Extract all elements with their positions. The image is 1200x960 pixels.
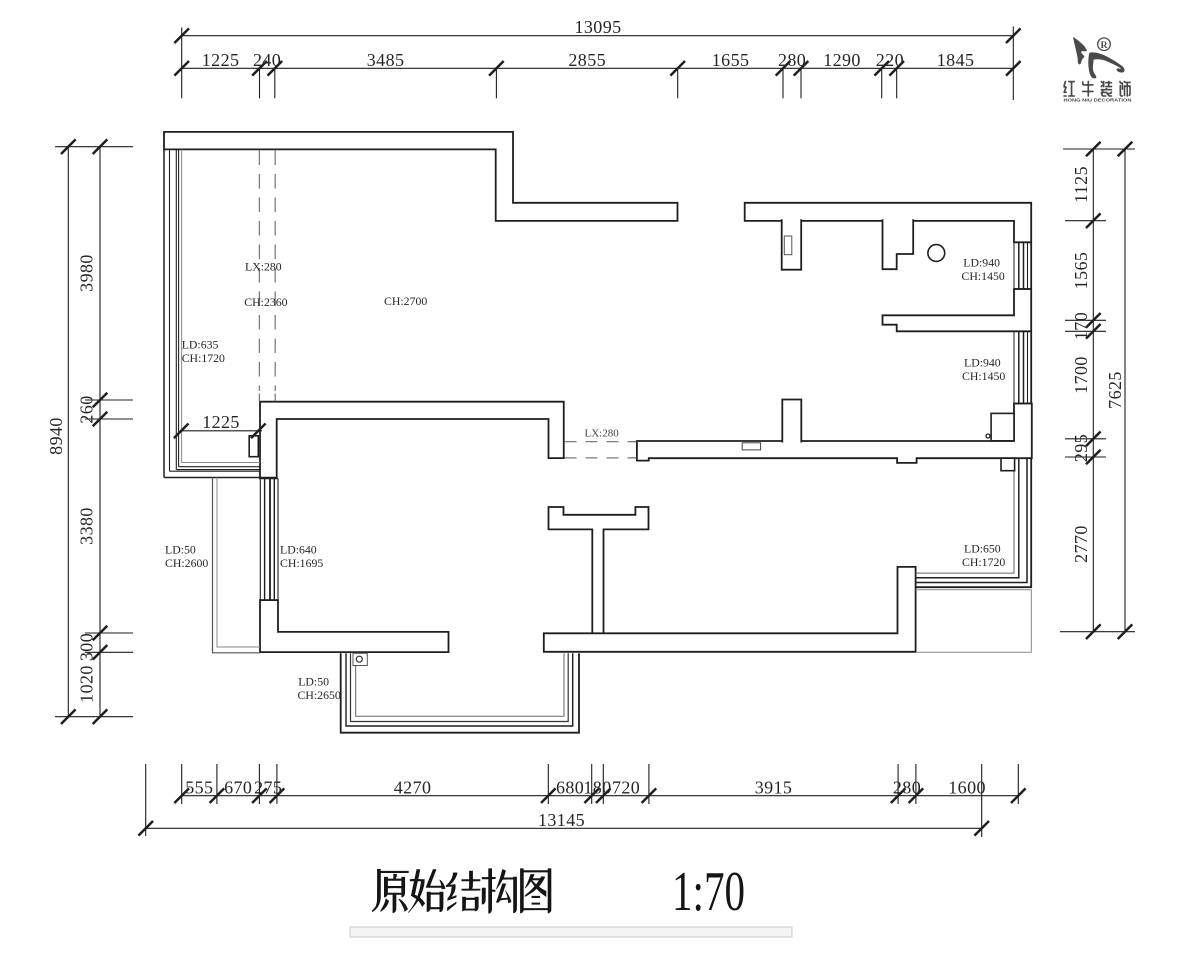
svg-text:280: 280	[893, 777, 921, 797]
svg-text:1600: 1600	[948, 777, 986, 797]
svg-text:280: 280	[778, 50, 806, 70]
svg-text:260: 260	[77, 395, 97, 423]
svg-text:HONG NIU DECORATION: HONG NIU DECORATION	[1064, 98, 1133, 104]
svg-text:1225: 1225	[202, 412, 240, 432]
svg-text:LD:635: LD:635	[182, 338, 219, 352]
svg-text:720: 720	[612, 777, 640, 797]
svg-text:CH:1720: CH:1720	[182, 351, 225, 365]
svg-text:2855: 2855	[568, 50, 606, 70]
svg-text:670: 670	[224, 777, 252, 797]
svg-text:300: 300	[77, 633, 97, 661]
svg-text:1020: 1020	[77, 665, 97, 703]
svg-text:4270: 4270	[394, 777, 432, 797]
svg-text:3380: 3380	[77, 507, 97, 545]
svg-text:1290: 1290	[823, 50, 861, 70]
svg-text:LD:640: LD:640	[280, 543, 317, 557]
svg-text:1:70: 1:70	[672, 861, 745, 923]
svg-text:CH:2700: CH:2700	[384, 294, 427, 308]
svg-text:CH:1695: CH:1695	[280, 556, 323, 570]
svg-text:CH:1450: CH:1450	[962, 369, 1005, 383]
svg-text:LX:280: LX:280	[245, 260, 282, 274]
svg-text:LD:650: LD:650	[964, 542, 1001, 556]
svg-text:CH:2360: CH:2360	[244, 295, 287, 309]
svg-text:680: 680	[556, 777, 584, 797]
svg-text:1565: 1565	[1071, 252, 1091, 290]
svg-text:7625: 7625	[1105, 371, 1125, 409]
svg-text:LD:50: LD:50	[165, 543, 196, 557]
svg-text:220: 220	[876, 50, 904, 70]
svg-text:295: 295	[1071, 434, 1091, 462]
svg-text:13145: 13145	[538, 810, 585, 830]
svg-text:1655: 1655	[712, 50, 750, 70]
svg-text:1225: 1225	[202, 50, 240, 70]
svg-text:555: 555	[185, 777, 213, 797]
svg-text:R: R	[1100, 40, 1108, 51]
svg-text:170: 170	[1071, 312, 1091, 340]
svg-text:2770: 2770	[1071, 525, 1091, 563]
svg-text:275: 275	[254, 777, 282, 797]
svg-text:CH:1720: CH:1720	[962, 555, 1005, 569]
svg-text:13095: 13095	[575, 17, 622, 37]
svg-text:180: 180	[583, 777, 611, 797]
svg-text:CH:2650: CH:2650	[298, 688, 341, 702]
svg-text:3485: 3485	[367, 50, 405, 70]
svg-text:240: 240	[253, 50, 281, 70]
svg-text:1125: 1125	[1071, 166, 1091, 203]
svg-text:LX:280: LX:280	[585, 428, 620, 440]
svg-text:LD:50: LD:50	[298, 675, 329, 689]
svg-text:LD:940: LD:940	[963, 256, 1000, 270]
svg-text:LD:940: LD:940	[964, 356, 1001, 370]
svg-text:1700: 1700	[1071, 356, 1091, 394]
svg-text:1845: 1845	[937, 50, 975, 70]
svg-text:CH:2600: CH:2600	[165, 556, 208, 570]
svg-text:3980: 3980	[77, 254, 97, 292]
svg-text:3915: 3915	[755, 777, 793, 797]
svg-text:CH:1450: CH:1450	[962, 269, 1005, 283]
svg-text:8940: 8940	[46, 417, 66, 455]
